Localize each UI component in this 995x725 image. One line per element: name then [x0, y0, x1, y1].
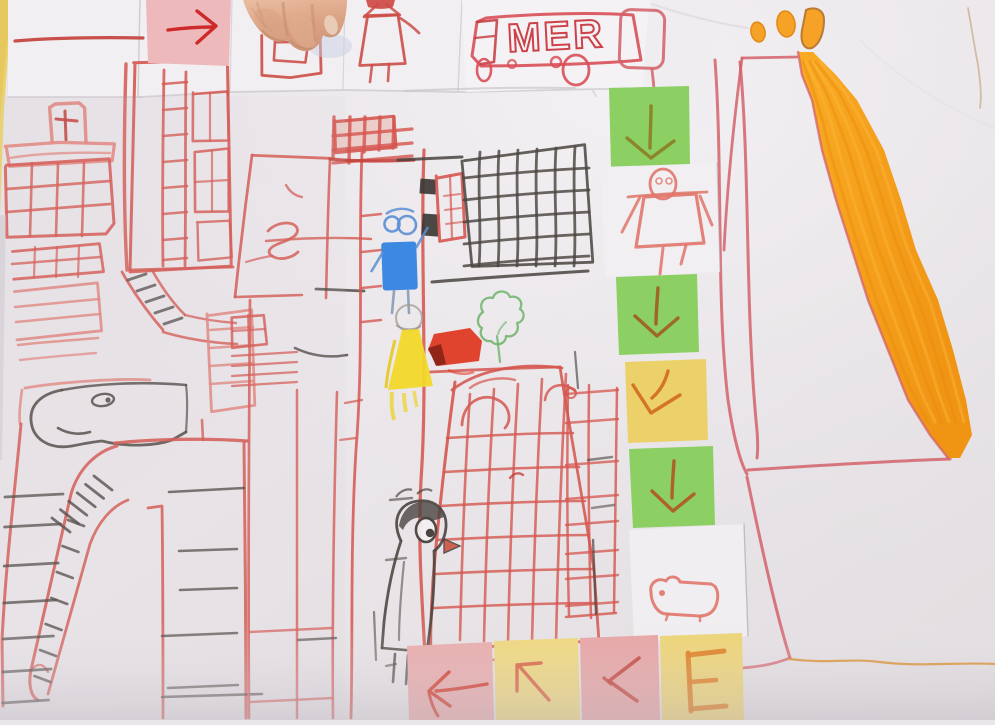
svg-text:MER: MER [506, 12, 606, 61]
